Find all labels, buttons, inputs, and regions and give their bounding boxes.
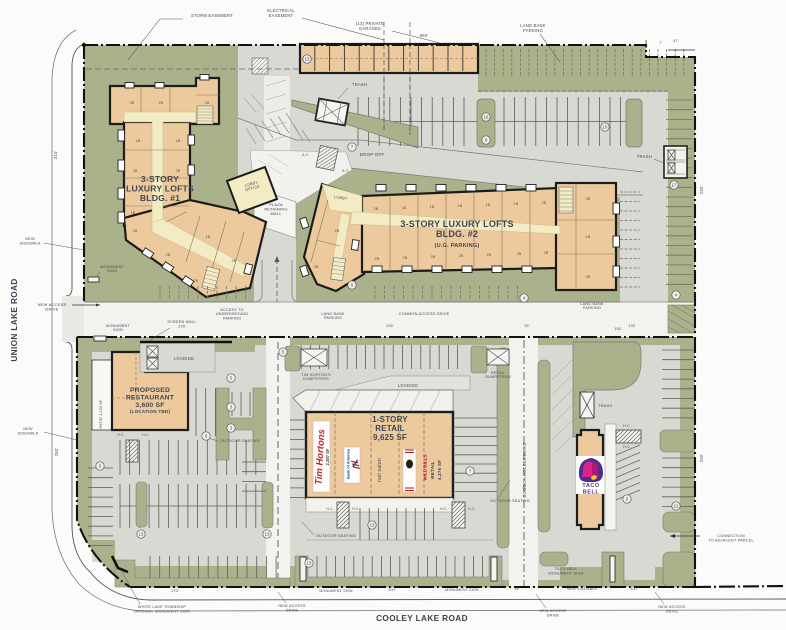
svg-text:230': 230' — [699, 454, 704, 463]
svg-text:LOADING: LOADING — [398, 383, 418, 388]
svg-text:Bank of America: Bank of America — [347, 448, 351, 479]
svg-text:2B: 2B — [159, 101, 164, 105]
svg-text:17: 17 — [672, 183, 677, 188]
svg-text:COOLEY LAKE ROAD: COOLEY LAKE ROAD — [376, 614, 468, 623]
svg-text:RETAIL: RETAIL — [430, 461, 435, 478]
svg-text:16: 16 — [484, 115, 489, 120]
svg-text:7': 7' — [659, 41, 662, 45]
svg-text:10: 10 — [603, 125, 608, 130]
svg-text:LAND BANKPARKING: LAND BANKPARKING — [321, 312, 345, 320]
svg-text:MONUMENT SIGN: MONUMENT SIGN — [445, 588, 479, 592]
svg-text:200': 200' — [388, 588, 396, 592]
svg-text:2B: 2B — [586, 275, 591, 279]
svg-text:H.C.: H.C. — [468, 507, 476, 511]
svg-text:(13) PRIVATEGARAGES: (13) PRIVATEGARAGES — [356, 21, 384, 31]
svg-text:1B: 1B — [486, 203, 491, 207]
svg-text:COMMON ACCESS DRIVE: COMMON ACCESS DRIVE — [399, 312, 450, 316]
svg-text:UNION LAKE ROAD: UNION LAKE ROAD — [10, 278, 19, 361]
svg-text:2B: 2B — [375, 257, 380, 261]
svg-text:TRASH: TRASH — [637, 154, 652, 159]
svg-text:TRASH: TRASH — [352, 82, 367, 87]
svg-text:MONUMENT SIGN: MONUMENT SIGN — [319, 589, 353, 593]
svg-text:H.C.: H.C. — [623, 424, 631, 428]
svg-text:2,387 SF: 2,387 SF — [325, 448, 330, 465]
svg-text:1B: 1B — [176, 139, 181, 143]
svg-text:230': 230' — [699, 186, 704, 195]
svg-text:2B: 2B — [133, 229, 138, 233]
svg-text:TACO: TACO — [582, 483, 599, 489]
svg-text:250': 250' — [54, 448, 59, 457]
svg-text:H.C.: H.C. — [142, 433, 150, 437]
svg-text:13: 13 — [139, 532, 144, 537]
svg-text:STORM EASEMENT: STORM EASEMENT — [191, 13, 233, 18]
svg-text:1B: 1B — [514, 202, 519, 206]
svg-text:WHITE LAKE TOWNSHIPGATEWAY MON: WHITE LAKE TOWNSHIPGATEWAY MONUMENT SIGN — [134, 605, 190, 613]
svg-text:25': 25' — [524, 324, 529, 328]
svg-text:2B: 2B — [487, 253, 492, 257]
svg-text:nail salon: nail salon — [377, 458, 383, 482]
svg-text:2B: 2B — [374, 207, 379, 211]
svg-text:H.C.: H.C. — [440, 507, 448, 511]
svg-text:2B: 2B — [194, 279, 199, 283]
svg-text:135': 135' — [628, 324, 636, 328]
svg-text:1B: 1B — [430, 205, 435, 209]
svg-text:35': 35' — [514, 587, 519, 591]
svg-text:2B: 2B — [586, 197, 591, 201]
svg-text:2B: 2B — [176, 169, 181, 173]
svg-text:LAND BANKPARKING: LAND BANKPARKING — [580, 302, 604, 310]
svg-text:4,275 SF: 4,275 SF — [437, 460, 442, 480]
svg-text:13: 13 — [265, 532, 270, 537]
svg-text:TIM HORTON'SDUMPSTERS: TIM HORTON'SDUMPSTERS — [301, 373, 331, 381]
svg-text:2B: 2B — [130, 101, 135, 105]
svg-text:2B: 2B — [232, 259, 237, 263]
svg-text:2B: 2B — [431, 255, 436, 259]
svg-text:1B: 1B — [206, 235, 211, 239]
svg-text:WILD BILLS: WILD BILLS — [423, 454, 428, 480]
svg-text:100': 100' — [630, 587, 638, 591]
svg-text:BELL: BELL — [583, 490, 600, 496]
svg-text:OUTDOOR SEATING: OUTDOOR SEATING — [490, 499, 530, 503]
svg-text:13: 13 — [307, 561, 312, 566]
svg-text:13: 13 — [305, 57, 310, 62]
svg-text:2B: 2B — [133, 169, 138, 173]
svg-text:2B: 2B — [459, 254, 464, 258]
svg-text:12: 12 — [674, 504, 679, 509]
svg-text:H.C.: H.C. — [623, 445, 631, 449]
svg-text:47': 47' — [673, 39, 679, 43]
svg-text:2B: 2B — [403, 256, 408, 260]
svg-text:314': 314' — [53, 151, 58, 160]
svg-text:170': 170' — [171, 589, 179, 593]
svg-text:2B: 2B — [544, 251, 549, 255]
svg-text:2B: 2B — [314, 265, 319, 269]
svg-text:13: 13 — [370, 523, 375, 528]
svg-text:ELECTRICALEASEMENT: ELECTRICALEASEMENT — [267, 8, 295, 18]
svg-text:1B: 1B — [458, 204, 463, 208]
svg-text:OUTDOOR SEATING: OUTDOOR SEATING — [220, 439, 260, 443]
svg-text:DROP-OFF: DROP-OFF — [360, 152, 385, 157]
svg-text:(U.G. PARKING): (U.G. PARKING) — [435, 243, 480, 249]
svg-text:1B: 1B — [586, 235, 591, 239]
svg-text:TRASH: TRASH — [598, 403, 613, 408]
svg-text:1B: 1B — [131, 211, 136, 215]
svg-text:1B: 1B — [136, 139, 141, 143]
svg-text:1B: 1B — [402, 206, 407, 210]
svg-text:200': 200' — [386, 324, 394, 328]
svg-text:2B: 2B — [166, 253, 171, 257]
svg-text:LAND BANKPARKING: LAND BANKPARKING — [520, 23, 546, 33]
svg-text:H.C.: H.C. — [326, 507, 334, 511]
svg-text:NEW SIDEWALK: NEW SIDEWALK — [567, 587, 598, 591]
svg-text:560': 560' — [420, 33, 429, 38]
svg-text:2B: 2B — [335, 229, 340, 233]
svg-text:130': 130' — [614, 327, 622, 331]
svg-text:H.C.: H.C. — [117, 433, 125, 437]
svg-text:2B: 2B — [205, 101, 210, 105]
svg-text:A.C.: A.C. — [302, 153, 310, 157]
svg-text:H.C.: H.C. — [352, 507, 360, 511]
svg-text:2B: 2B — [517, 252, 522, 256]
svg-text:PATIO 1,200 SF: PATIO 1,200 SF — [99, 399, 103, 428]
svg-text:1-STORYRETAIL9,625 SF: 1-STORYRETAIL9,625 SF — [372, 415, 408, 442]
svg-text:(LOCATION TBD): (LOCATION TBD) — [130, 409, 170, 414]
svg-text:COMMON ACCESS DRIVE: COMMON ACCESS DRIVE — [522, 442, 527, 497]
svg-text:LOADING: LOADING — [174, 356, 194, 361]
svg-text:2B: 2B — [542, 201, 547, 205]
svg-text:OUTDOOR SEATING: OUTDOOR SEATING — [316, 534, 356, 538]
svg-text:A.C.: A.C. — [342, 169, 350, 173]
